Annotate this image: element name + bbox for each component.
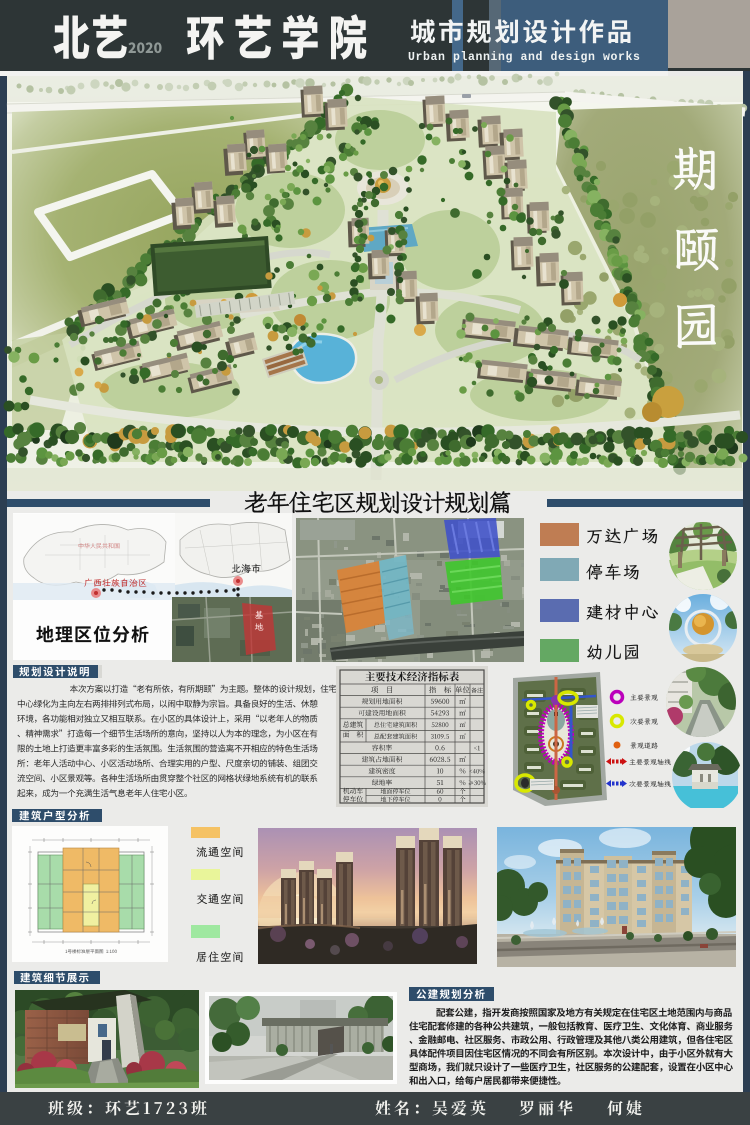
svg-text:Urban planning and design work: Urban planning and design works [408, 51, 641, 64]
